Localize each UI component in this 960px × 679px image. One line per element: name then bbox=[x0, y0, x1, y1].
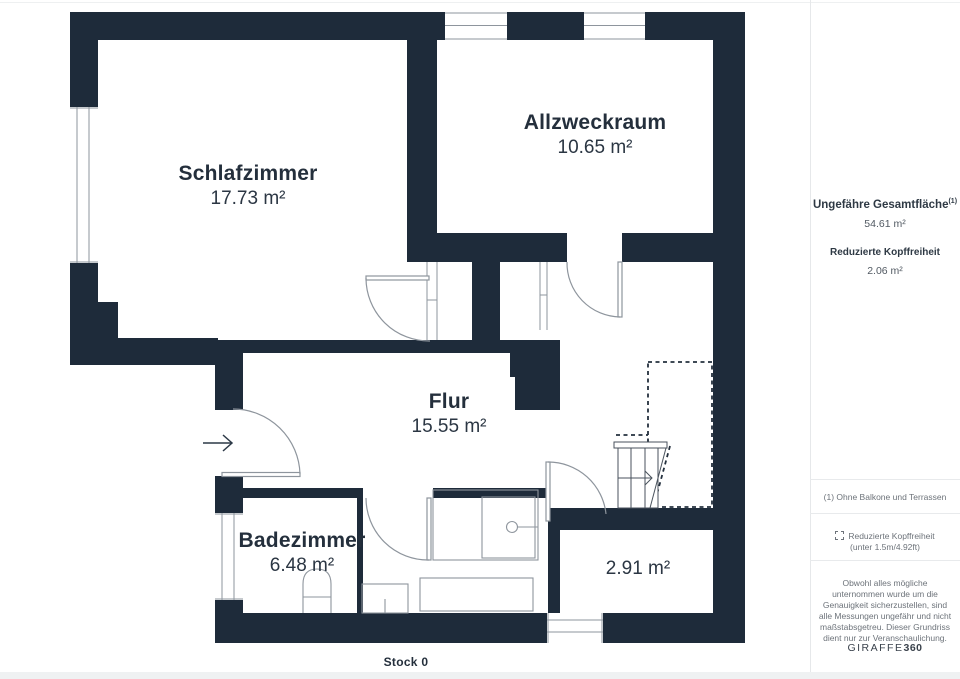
wall-segment bbox=[407, 233, 567, 262]
bathtub bbox=[420, 578, 533, 611]
stairs bbox=[614, 442, 667, 508]
section-divider bbox=[810, 479, 960, 480]
shower bbox=[433, 490, 538, 560]
wall-segment-bottom bbox=[603, 613, 745, 643]
wall-segment-left bbox=[70, 12, 98, 353]
disclaimer-text: Obwohl alles mögliche unternommen wurde … bbox=[818, 578, 952, 644]
total-area-value: 54.61 m² bbox=[810, 218, 960, 230]
wall-segment bbox=[510, 340, 560, 377]
footnote-text: (1) Ohne Balkone und Terrassen bbox=[818, 492, 952, 503]
section-divider bbox=[810, 513, 960, 514]
wall-segment-left-step bbox=[98, 302, 118, 353]
reduced-headroom-icon bbox=[835, 531, 844, 540]
washbasin bbox=[362, 584, 408, 613]
interior-frame-right bbox=[540, 262, 547, 330]
footnote-marker: (1) bbox=[948, 198, 957, 205]
wall-segment bbox=[548, 508, 713, 530]
wall-segment-room-divider bbox=[407, 12, 437, 233]
wall-segment bbox=[548, 530, 560, 613]
reduced-headroom-label: Reduzierte Kopffreiheit bbox=[810, 247, 960, 258]
window-bottom bbox=[547, 613, 603, 643]
room-name: Badezimmer bbox=[239, 529, 366, 553]
wall-segment-bath-top bbox=[238, 488, 363, 498]
wall-segment-bottom bbox=[215, 613, 548, 643]
room-label-small-room: 2.91 m² bbox=[606, 558, 670, 580]
wall-segment-entry-jamb bbox=[215, 352, 243, 410]
room-area: 15.55 m² bbox=[412, 416, 487, 438]
room-area: 17.73 m² bbox=[179, 188, 318, 210]
page-bottom-strip bbox=[0, 672, 960, 679]
shower-drain-icon bbox=[507, 522, 518, 533]
allzweckraum-door bbox=[567, 262, 622, 317]
legend-reduced-headroom: Reduzierte Kopffreiheit (unter 1.5m/4.92… bbox=[818, 531, 952, 553]
total-area-label: Ungefähre Gesamtfläche(1) bbox=[810, 198, 960, 211]
bathroom-door bbox=[366, 498, 431, 560]
wall-segment bbox=[215, 340, 510, 353]
room-name: Schlafzimmer bbox=[179, 162, 318, 186]
reduced-headroom-area bbox=[616, 362, 712, 509]
room-area: 2.91 m² bbox=[606, 558, 670, 580]
entrance-arrow-icon bbox=[203, 435, 232, 451]
legend-label: Reduzierte Kopffreiheit bbox=[848, 531, 934, 541]
info-sidebar: Ungefähre Gesamtfläche(1) 54.61 m² Reduz… bbox=[810, 0, 960, 679]
wall-segment-right bbox=[713, 12, 745, 643]
room-label-schlafzimmer: Schlafzimmer 17.73 m² bbox=[179, 162, 318, 210]
brand-suffix: 360 bbox=[903, 642, 922, 654]
legend-sub: (unter 1.5m/4.92ft) bbox=[850, 542, 920, 552]
brand-name: GIRAFFE bbox=[847, 642, 903, 654]
wall-segment-hall-stub bbox=[472, 262, 500, 347]
reduced-headroom-value: 2.06 m² bbox=[810, 265, 960, 277]
floor-plan: Schlafzimmer 17.73 m² Allzweckraum 10.65… bbox=[0, 0, 810, 679]
wall-segment bbox=[118, 338, 218, 365]
section-divider bbox=[810, 560, 960, 561]
area-summary: Ungefähre Gesamtfläche(1) 54.61 m² Reduz… bbox=[810, 198, 960, 277]
room-label-allzweckraum: Allzweckraum 10.65 m² bbox=[524, 111, 666, 159]
wall-segment bbox=[70, 353, 120, 365]
room-area: 10.65 m² bbox=[524, 137, 666, 159]
stairs-direction-arrow bbox=[645, 471, 652, 485]
room-label-flur: Flur 15.55 m² bbox=[412, 390, 487, 438]
wall-segment bbox=[433, 488, 550, 498]
entry-door bbox=[222, 409, 300, 477]
room-name: Allzweckraum bbox=[524, 111, 666, 135]
room-name: Flur bbox=[412, 390, 487, 414]
floor-label: Stock 0 bbox=[384, 655, 429, 669]
room-label-badezimmer: Badezimmer 6.48 m² bbox=[239, 529, 366, 577]
brand-logo: GIRAFFE360 bbox=[810, 642, 960, 654]
bedroom-door bbox=[366, 276, 430, 341]
wall-segment bbox=[515, 377, 560, 410]
room-area: 6.48 m² bbox=[239, 555, 366, 577]
interior-frame-left bbox=[427, 262, 437, 340]
